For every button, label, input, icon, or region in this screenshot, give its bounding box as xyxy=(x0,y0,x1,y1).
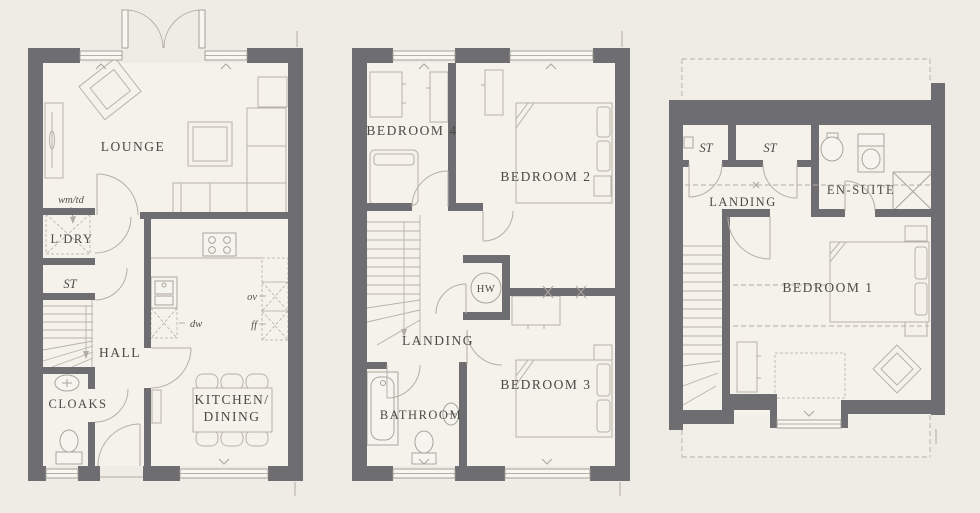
floorplan-page: LOUNGE wm/td L'DRY ST HALL CLOAKS KITCHE… xyxy=(0,0,980,513)
first-floor-plan: BEDROOM 4 BEDROOM 2 HW LANDING BATHROOM … xyxy=(352,31,630,496)
pillow xyxy=(915,247,927,279)
room-label-kitchen: KITCHEN/ xyxy=(195,392,270,407)
cloaks-toilet xyxy=(60,430,78,452)
roof-void-top xyxy=(682,59,930,100)
pillow xyxy=(597,364,610,396)
annotation-wm-td: wm/td xyxy=(58,195,84,206)
room-label-bedroom3: BEDROOM 3 xyxy=(500,377,591,392)
room-label-bedroom2: BEDROOM 2 xyxy=(500,169,591,184)
room-label-cloaks: CLOAKS xyxy=(48,397,107,411)
room-label-dining: DINING xyxy=(204,409,261,424)
annotation-dw: dw xyxy=(190,319,202,330)
toilet xyxy=(415,431,433,453)
room-label-lounge: LOUNGE xyxy=(101,139,166,154)
toilet-cistern xyxy=(412,453,436,464)
annotation-ov: ov xyxy=(247,292,257,303)
room-label-ensuite: EN-SUITE xyxy=(827,183,895,197)
ground-floor-plan: LOUNGE wm/td L'DRY ST HALL CLOAKS KITCHE… xyxy=(28,10,303,496)
room-label-store2: ST xyxy=(763,141,777,155)
room-label-bedroom4: BEDROOM 4 xyxy=(366,123,457,138)
room-label-bathroom: BATHROOM xyxy=(380,408,462,422)
ensuite-toilet xyxy=(862,149,880,169)
room-label-store: ST xyxy=(63,277,77,291)
french-door-leaf xyxy=(122,10,128,48)
label-hw: HW xyxy=(477,284,496,295)
ensuite-basin xyxy=(821,137,843,161)
room-label-hall: HALL xyxy=(99,345,141,360)
room-label-bedroom1: BEDROOM 1 xyxy=(782,280,873,295)
cloaks-toilet-cistern xyxy=(56,452,82,464)
hob xyxy=(203,233,236,256)
pillow xyxy=(915,283,927,315)
pillow xyxy=(597,141,610,171)
room-label-landing: LANDING xyxy=(402,333,474,348)
french-door-leaf xyxy=(199,10,205,48)
second-floor-plan: ST ST LANDING EN-SUITE BEDROOM 1 xyxy=(669,59,945,457)
ensuite-toilet-cistern xyxy=(858,134,884,146)
pillow xyxy=(597,400,610,432)
room-label-landing2: LANDING xyxy=(709,195,776,209)
room-label-store1: ST xyxy=(699,141,713,155)
pillow xyxy=(374,154,414,165)
pillow xyxy=(597,107,610,137)
room-label-laundry: L'DRY xyxy=(50,232,93,246)
floorplan-drawing: LOUNGE wm/td L'DRY ST HALL CLOAKS KITCHE… xyxy=(0,0,980,513)
